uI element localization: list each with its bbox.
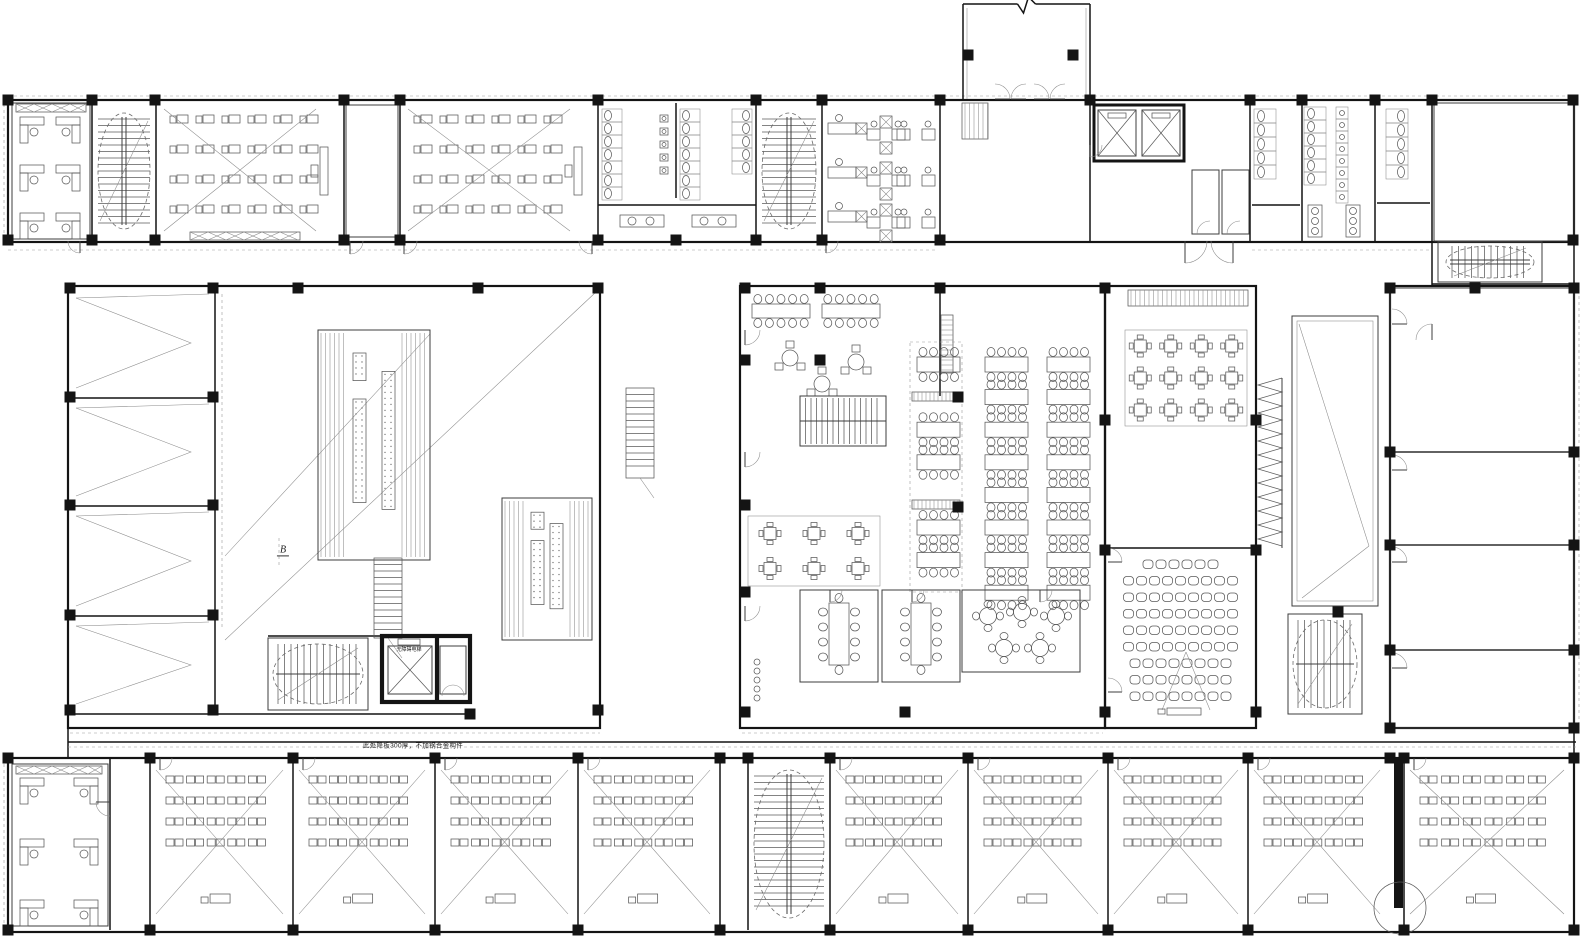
door-arc bbox=[1034, 84, 1049, 99]
structural-column bbox=[815, 355, 826, 366]
structural-column bbox=[963, 753, 974, 764]
structural-column bbox=[1385, 283, 1396, 294]
structural-column bbox=[65, 392, 76, 403]
structural-column bbox=[430, 753, 441, 764]
structural-column bbox=[1085, 95, 1096, 106]
structural-column bbox=[1568, 235, 1579, 246]
structural-column bbox=[935, 283, 946, 294]
door-arc bbox=[1258, 758, 1270, 770]
structural-column bbox=[671, 235, 682, 246]
structural-column bbox=[740, 500, 751, 511]
door-arc bbox=[745, 330, 760, 345]
structural-column bbox=[1569, 753, 1580, 764]
floor-plan: 此处降板300厚，不加钢合金构件 B 无障碍电梯 bbox=[0, 0, 1582, 936]
structural-column bbox=[963, 925, 974, 936]
structural-column bbox=[1470, 283, 1481, 294]
structural-column bbox=[1100, 415, 1111, 426]
accessible-elevator bbox=[382, 636, 470, 702]
classroom-b2 bbox=[299, 770, 425, 914]
structural-column bbox=[150, 95, 161, 106]
dishwash-room bbox=[962, 590, 1080, 672]
structural-column bbox=[1243, 925, 1254, 936]
door-arc bbox=[1392, 309, 1407, 324]
structural-column bbox=[573, 753, 584, 764]
stair-hall-oval bbox=[268, 638, 368, 710]
structural-column bbox=[740, 283, 751, 294]
structural-column bbox=[65, 283, 76, 294]
classroom-b9 bbox=[1410, 770, 1564, 914]
structural-column bbox=[3, 95, 14, 106]
section-marker-b: B bbox=[277, 544, 289, 556]
structural-column bbox=[963, 50, 974, 61]
structural-column bbox=[751, 235, 762, 246]
hall-room-2 bbox=[76, 404, 209, 496]
structural-column bbox=[1385, 753, 1396, 764]
classroom-b4 bbox=[584, 770, 710, 914]
structural-column bbox=[935, 95, 946, 106]
structural-column bbox=[1333, 607, 1344, 618]
hall-room-1 bbox=[76, 294, 209, 388]
classroom-top-2 bbox=[408, 109, 582, 231]
structural-column bbox=[1385, 540, 1396, 551]
tiered-seating-main bbox=[318, 330, 430, 560]
structural-column bbox=[395, 235, 406, 246]
courtyard-stair bbox=[626, 388, 654, 498]
structural-column bbox=[288, 753, 299, 764]
structural-column bbox=[1569, 283, 1580, 294]
dining-grand-stair bbox=[800, 396, 886, 446]
door-arc bbox=[1211, 241, 1233, 263]
hall-room-4 bbox=[76, 622, 209, 704]
structural-column bbox=[935, 235, 946, 246]
office-east-1 bbox=[1390, 288, 1574, 452]
structural-column bbox=[465, 709, 476, 720]
structural-column bbox=[593, 705, 604, 716]
structural-column bbox=[1569, 540, 1580, 551]
structural-column bbox=[150, 235, 161, 246]
office-top-left bbox=[12, 103, 90, 239]
structural-column bbox=[1251, 707, 1262, 718]
door-arc bbox=[840, 758, 852, 770]
structural-column bbox=[825, 925, 836, 936]
door-arc bbox=[1050, 84, 1065, 99]
door-arc bbox=[745, 606, 760, 621]
structural-column bbox=[1427, 95, 1438, 106]
door-arc bbox=[978, 758, 990, 770]
structural-column bbox=[1569, 645, 1580, 656]
structural-column bbox=[817, 95, 828, 106]
structural-column bbox=[395, 95, 406, 106]
ramp bbox=[1292, 316, 1378, 606]
structural-column bbox=[208, 392, 219, 403]
structural-column bbox=[1100, 707, 1111, 718]
door-arc bbox=[1414, 758, 1426, 770]
office-east-4 bbox=[1390, 650, 1574, 728]
tiered-seating-small bbox=[502, 498, 592, 640]
service-shafts bbox=[1192, 170, 1249, 234]
meeting-room-2 bbox=[882, 590, 960, 682]
structural-column bbox=[1385, 723, 1396, 734]
structural-column bbox=[339, 235, 350, 246]
structural-column bbox=[65, 610, 76, 621]
door-arc bbox=[1090, 145, 1102, 157]
toilet-top-right bbox=[1254, 107, 1408, 237]
door-arc bbox=[303, 758, 315, 770]
stair-top-right bbox=[1438, 242, 1542, 282]
structural-column bbox=[1399, 753, 1410, 764]
classroom-b3 bbox=[441, 770, 568, 914]
structural-column bbox=[593, 283, 604, 294]
room-top-right bbox=[1434, 103, 1574, 241]
toilet-top bbox=[602, 109, 752, 227]
structural-column bbox=[430, 925, 441, 936]
structural-column bbox=[715, 753, 726, 764]
door-arc bbox=[745, 452, 760, 467]
lobby-wall-hatch bbox=[962, 103, 988, 139]
structural-column bbox=[145, 925, 156, 936]
structural-column bbox=[740, 587, 751, 598]
structural-column bbox=[145, 753, 156, 764]
office-top-center bbox=[828, 115, 935, 243]
structural-column bbox=[817, 235, 828, 246]
classroom-b8 bbox=[1254, 770, 1380, 914]
floor-plan-canvas bbox=[0, 0, 1582, 936]
structural-column bbox=[1100, 545, 1111, 556]
structural-column bbox=[1385, 447, 1396, 458]
stair-top-center bbox=[762, 113, 816, 229]
structural-column bbox=[1399, 925, 1410, 936]
door-arc bbox=[1011, 84, 1026, 99]
hall-room-3 bbox=[76, 512, 209, 606]
structural-column bbox=[1103, 925, 1114, 936]
structural-column bbox=[65, 500, 76, 511]
door-arc bbox=[1108, 678, 1122, 692]
structural-column bbox=[715, 925, 726, 936]
structural-column bbox=[293, 283, 304, 294]
structural-column bbox=[208, 283, 219, 294]
slab-drop-annotation: 此处降板300厚，不加钢合金构件 bbox=[363, 740, 463, 750]
structural-column bbox=[65, 705, 76, 716]
window-cabinet-1 bbox=[16, 104, 86, 112]
door-arc bbox=[1416, 324, 1432, 340]
multipurpose-hall bbox=[222, 292, 596, 640]
structural-column bbox=[1569, 723, 1580, 734]
door-arc bbox=[445, 758, 457, 770]
structural-column bbox=[1370, 95, 1381, 106]
window-cabinet-2 bbox=[190, 232, 300, 240]
stair-bottom bbox=[754, 770, 824, 918]
structural-column bbox=[1297, 95, 1308, 106]
office-east-3 bbox=[1390, 545, 1574, 650]
structural-column bbox=[573, 925, 584, 936]
stair-top-left bbox=[98, 113, 150, 229]
structural-column bbox=[473, 283, 484, 294]
structural-column bbox=[1251, 545, 1262, 556]
structural-column bbox=[815, 283, 826, 294]
classroom-b6 bbox=[974, 770, 1098, 914]
structural-column bbox=[743, 753, 754, 764]
structural-column bbox=[900, 707, 911, 718]
structural-column bbox=[1569, 925, 1580, 936]
structural-column bbox=[288, 925, 299, 936]
structural-column bbox=[339, 95, 350, 106]
structural-column bbox=[1385, 645, 1396, 656]
cafe-area bbox=[752, 295, 953, 702]
accessible-elevator-label: 无障碍电梯 bbox=[396, 646, 421, 653]
structural-column bbox=[825, 753, 836, 764]
door-arc bbox=[160, 758, 172, 770]
door-arc bbox=[1118, 758, 1130, 770]
structural-column bbox=[3, 925, 14, 936]
structural-column bbox=[1568, 95, 1579, 106]
classroom-b7 bbox=[1114, 770, 1238, 914]
structural-column bbox=[751, 95, 762, 106]
structural-column bbox=[1103, 753, 1114, 764]
structural-column bbox=[208, 705, 219, 716]
lecture-room bbox=[1124, 560, 1238, 715]
folding-partition bbox=[1258, 378, 1282, 548]
private-dining bbox=[1125, 330, 1247, 426]
structural-column bbox=[3, 235, 14, 246]
meeting-room-1 bbox=[800, 590, 878, 682]
structural-column bbox=[3, 753, 14, 764]
window-cabinet-3 bbox=[16, 766, 102, 774]
structural-column bbox=[208, 500, 219, 511]
dining-hall bbox=[910, 342, 1090, 610]
structural-column bbox=[1245, 95, 1256, 106]
structural-column bbox=[1569, 447, 1580, 458]
structural-column bbox=[740, 355, 751, 366]
structural-column bbox=[87, 95, 98, 106]
elevator-bank bbox=[1094, 105, 1184, 161]
structural-column bbox=[593, 235, 604, 246]
structural-column bbox=[740, 707, 751, 718]
classroom-top-1 bbox=[164, 109, 328, 231]
office-east-2 bbox=[1390, 452, 1574, 545]
vestibule-classrooms bbox=[346, 105, 398, 237]
dining-small-tables bbox=[748, 516, 880, 586]
door-arc bbox=[1185, 241, 1207, 263]
classroom-b1 bbox=[156, 770, 283, 914]
stair-east bbox=[1288, 614, 1362, 714]
structural-column bbox=[1100, 283, 1111, 294]
door-arc bbox=[830, 590, 842, 602]
structural-column bbox=[593, 95, 604, 106]
door-arc bbox=[995, 84, 1010, 99]
structural-column bbox=[1068, 50, 1079, 61]
structural-column bbox=[1251, 415, 1262, 426]
structural-column bbox=[953, 392, 964, 403]
structural-column bbox=[87, 235, 98, 246]
structural-column bbox=[1243, 753, 1254, 764]
serving-counter bbox=[1128, 290, 1248, 306]
classroom-b5 bbox=[836, 770, 958, 914]
structural-column bbox=[208, 610, 219, 621]
office-bottom-left bbox=[12, 764, 108, 926]
door-arc bbox=[588, 758, 600, 770]
structural-column bbox=[953, 502, 964, 513]
